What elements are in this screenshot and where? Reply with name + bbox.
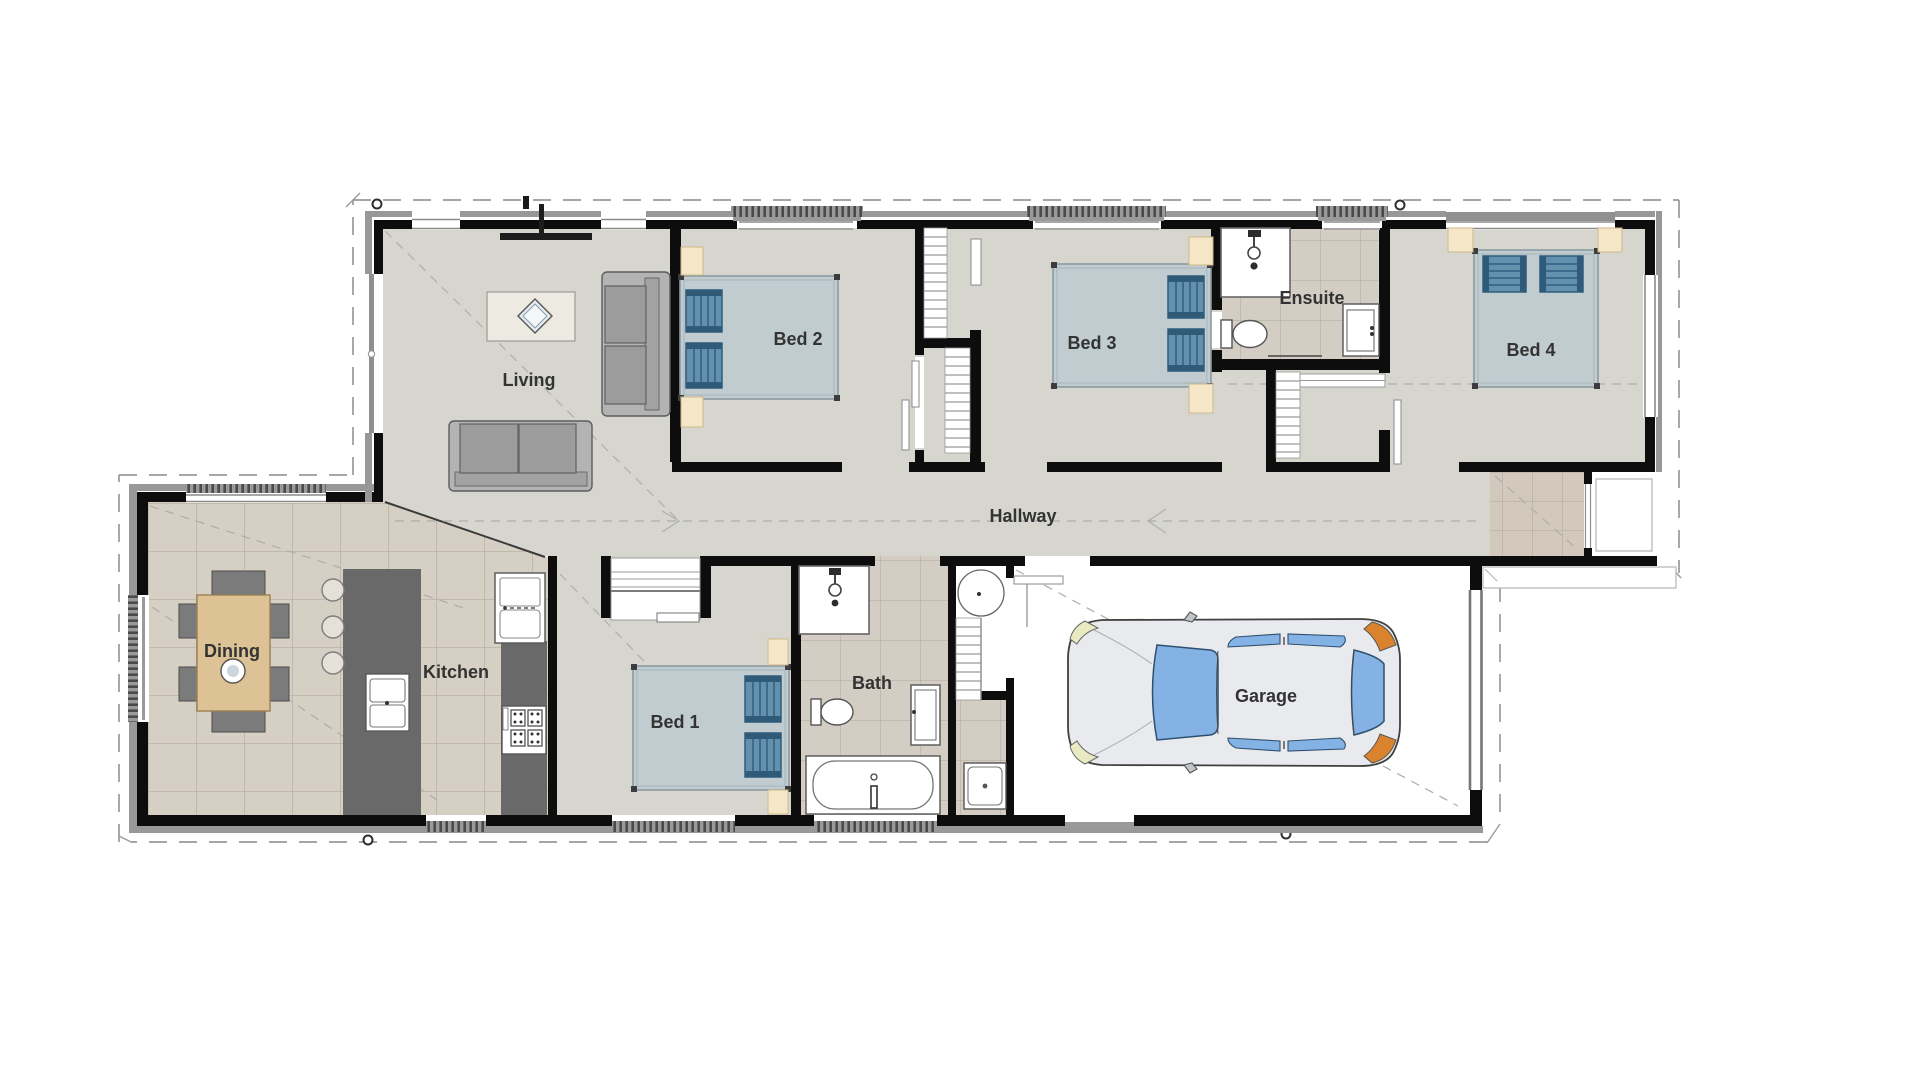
svg-text:Dining: Dining bbox=[204, 641, 260, 661]
svg-text:Bed 1: Bed 1 bbox=[650, 712, 699, 732]
svg-text:Living: Living bbox=[503, 370, 556, 390]
svg-text:Garage: Garage bbox=[1235, 686, 1297, 706]
svg-text:Bed 2: Bed 2 bbox=[773, 329, 822, 349]
svg-text:Kitchen: Kitchen bbox=[423, 662, 489, 682]
svg-text:Hallway: Hallway bbox=[989, 506, 1056, 526]
svg-text:Bath: Bath bbox=[852, 673, 892, 693]
svg-text:Ensuite: Ensuite bbox=[1279, 288, 1344, 308]
svg-text:Bed 3: Bed 3 bbox=[1067, 333, 1116, 353]
svg-text:Bed 4: Bed 4 bbox=[1506, 340, 1555, 360]
